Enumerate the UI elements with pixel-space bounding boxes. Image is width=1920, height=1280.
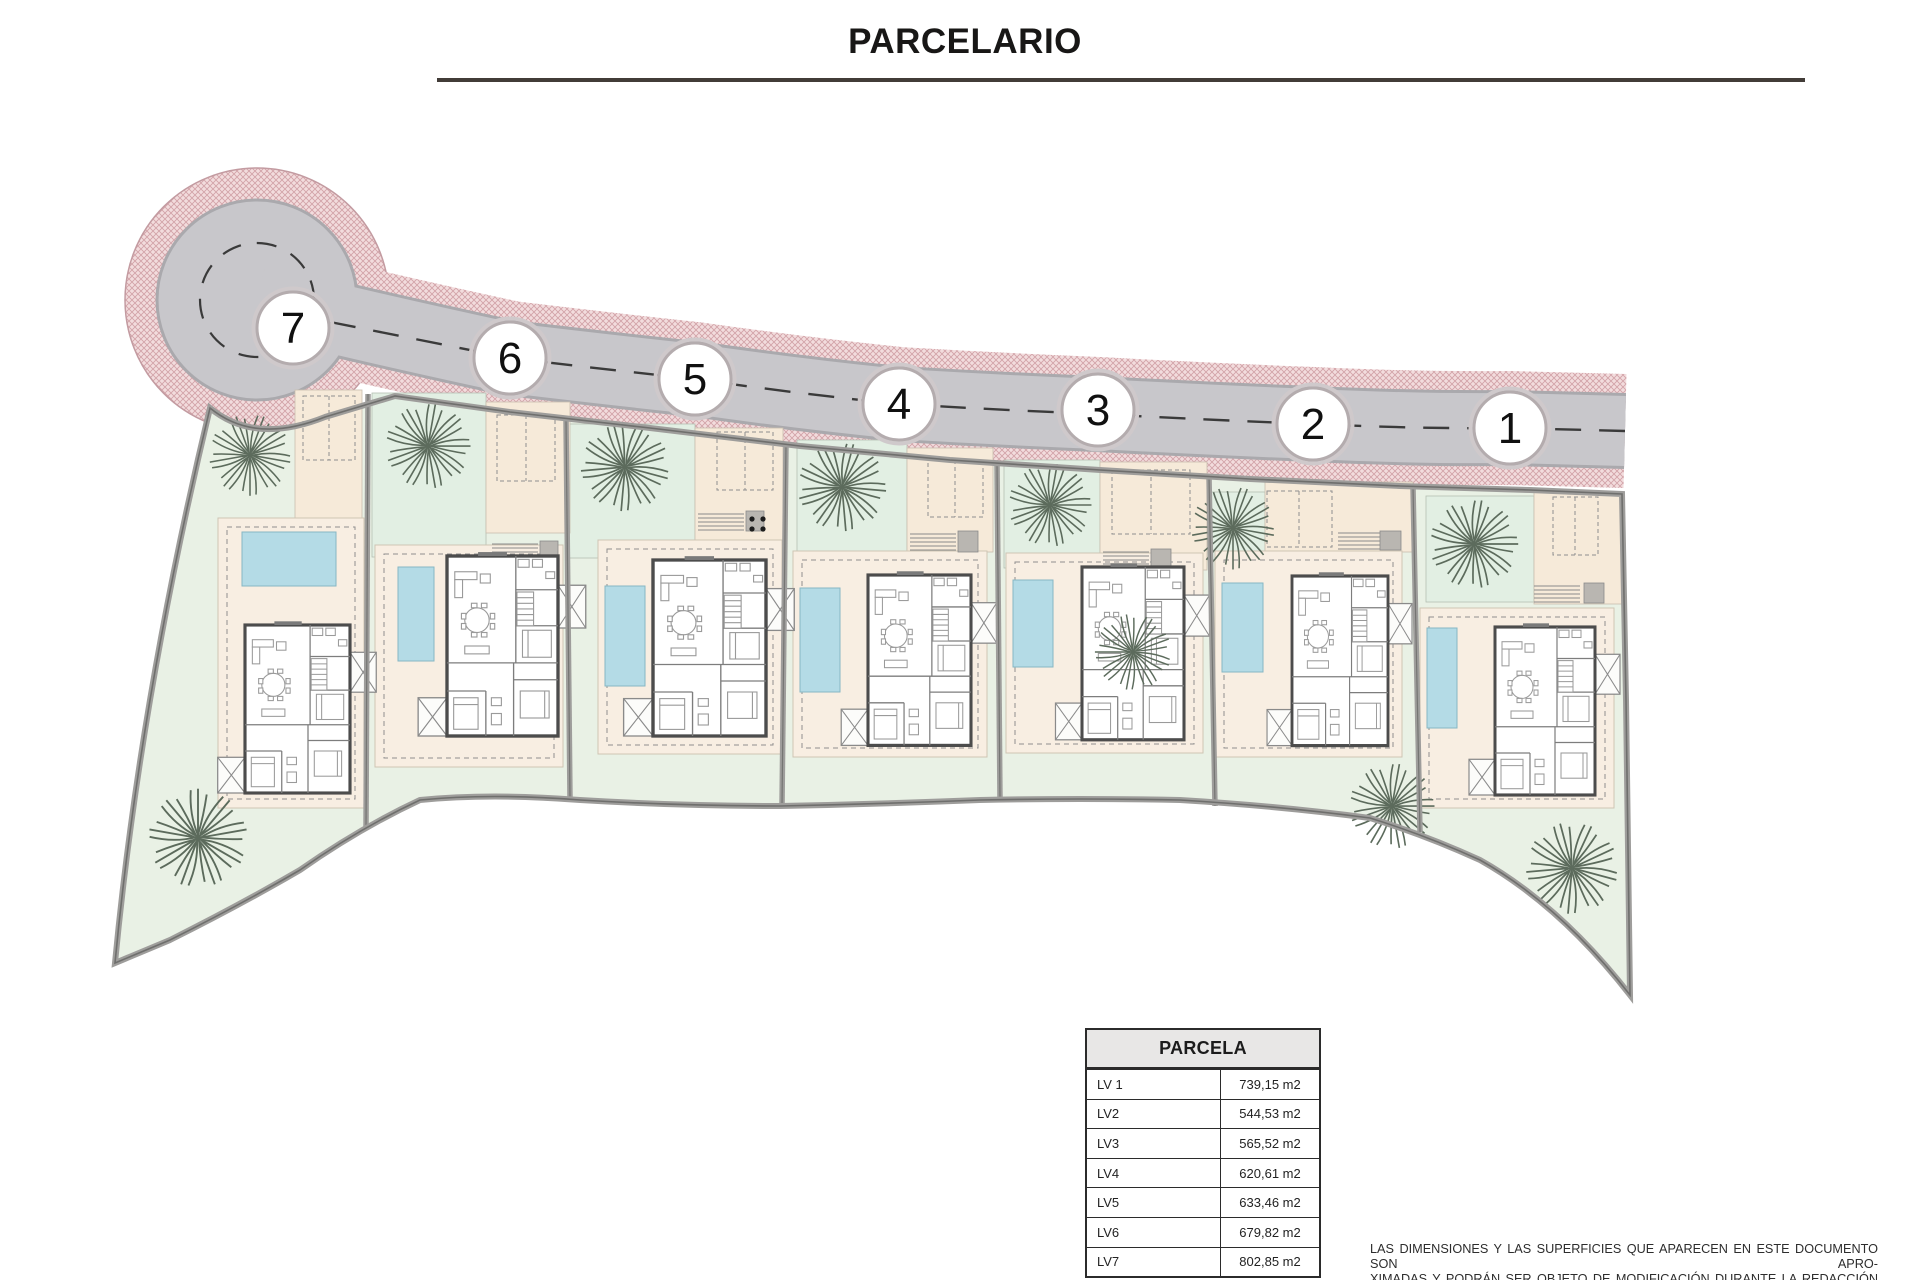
disclaimer-line-1: LAS DIMENSIONES Y LAS SUPERFICIES QUE AP… xyxy=(1370,1242,1878,1272)
table-row: LV 1739,15 m2 xyxy=(1087,1069,1319,1099)
marker-4-label: 4 xyxy=(887,380,911,429)
marker-5: 5 xyxy=(656,340,735,419)
table-row: LV4620,61 m2 xyxy=(1087,1158,1319,1188)
disclaimer-note: LAS DIMENSIONES Y LAS SUPERFICIES QUE AP… xyxy=(1370,1242,1878,1280)
marker-5-label: 5 xyxy=(683,355,707,404)
table-row: LV2544,53 m2 xyxy=(1087,1099,1319,1129)
marker-2-label: 2 xyxy=(1301,400,1325,449)
marker-4: 4 xyxy=(860,365,939,444)
marker-7: 7 xyxy=(254,289,333,368)
table-row: LV7802,85 m2 xyxy=(1087,1247,1319,1277)
disclaimer-line-2: XIMADAS Y PODRÁN SER OBJETO DE MODIFICAC… xyxy=(1370,1272,1878,1280)
marker-6: 6 xyxy=(471,319,550,398)
page-title: PARCELARIO xyxy=(848,22,1082,62)
marker-2: 2 xyxy=(1274,385,1353,464)
site-plan-page: 7 6 5 4 3 xyxy=(0,0,1920,1280)
parcel-plan-drawing: 7 6 5 4 3 xyxy=(0,0,1920,1280)
table-row: LV5633,46 m2 xyxy=(1087,1187,1319,1217)
table-row: LV3565,52 m2 xyxy=(1087,1128,1319,1158)
marker-3-label: 3 xyxy=(1086,386,1110,435)
parcel-table: PARCELA LV 1739,15 m2 LV2544,53 m2 LV356… xyxy=(1085,1028,1321,1278)
table-row: LV6679,82 m2 xyxy=(1087,1217,1319,1247)
marker-6-label: 6 xyxy=(498,334,522,383)
marker-3: 3 xyxy=(1059,371,1138,450)
marker-1: 1 xyxy=(1471,389,1550,468)
parcel-table-header: PARCELA xyxy=(1087,1030,1319,1069)
title-rule xyxy=(437,78,1805,82)
marker-1-label: 1 xyxy=(1498,404,1522,453)
marker-7-label: 7 xyxy=(281,304,305,353)
